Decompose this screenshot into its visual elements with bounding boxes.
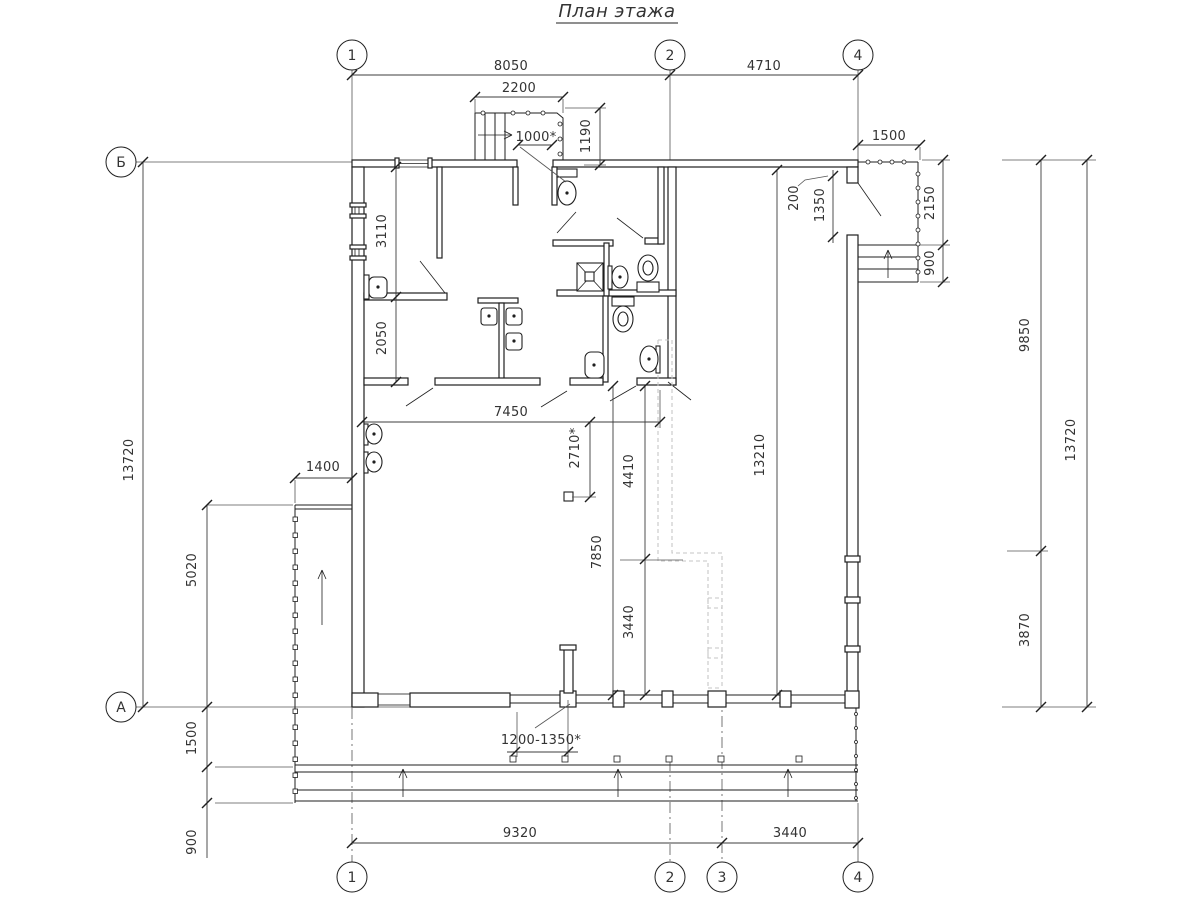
dim-label-3440-mid: 3440 (622, 605, 637, 639)
sink-symbol-2 (640, 346, 660, 373)
dim-label-2710: 2710* (568, 427, 583, 468)
dim-label-2200: 2200 (502, 81, 536, 96)
dim-label-3110: 3110 (375, 214, 390, 248)
dim-label-5020: 5020 (185, 553, 200, 587)
dim-label-13720-right: 13720 (1064, 419, 1079, 462)
toilet-symbol-2 (637, 255, 659, 292)
floor-marker-square (564, 492, 573, 501)
terrace (295, 708, 858, 801)
shower-symbol (577, 263, 603, 291)
dim-label-13210: 13210 (753, 434, 768, 477)
dim-label-1200-1350: 1200-1350* (501, 733, 582, 748)
grid-label: Б (116, 155, 126, 171)
cabinet-sink-2 (506, 308, 522, 325)
grid-label: 1 (348, 48, 357, 64)
drawing-title: План этажа (558, 1, 675, 22)
sink-symbol-3 (585, 352, 604, 378)
grid-label: 4 (854, 48, 863, 64)
toilet-symbol-4 (364, 275, 387, 299)
grid-label: 2 (666, 48, 675, 64)
counter-outline-dashed (658, 340, 722, 688)
dim-label-1190: 1190 (579, 119, 594, 153)
interior-walls (364, 167, 676, 385)
dim-label-8050: 8050 (494, 59, 528, 74)
dim-label-13720-left: 13720 (122, 439, 137, 482)
dim-label-200: 200 (787, 185, 802, 211)
dim-label-2050: 2050 (375, 321, 390, 355)
dimension-labels: 8050 4710 2200 1000* 1190 1500 200 1350 … (122, 59, 1079, 855)
movable-partition-wall (564, 649, 573, 693)
ramp-left (295, 505, 352, 803)
grid-label: А (116, 700, 126, 716)
cabinet-sink-1 (481, 308, 497, 325)
cabinet-sink-3 (506, 333, 522, 350)
dimension-lines (143, 75, 1087, 858)
dim-label-1400: 1400 (306, 460, 340, 475)
leader-200 (798, 176, 828, 186)
dim-label-4410: 4410 (622, 454, 637, 488)
toilet-symbol-1 (557, 169, 577, 205)
fixtures (364, 169, 660, 501)
grid-label: 1 (348, 870, 357, 886)
dim-label-1500-top: 1500 (872, 129, 906, 144)
generated-marks (138, 70, 1092, 848)
toilet-symbol-3 (612, 297, 634, 332)
windows (350, 158, 860, 652)
dim-label-7850: 7850 (590, 535, 605, 569)
dim-label-9850: 9850 (1018, 318, 1033, 352)
sink-symbol-4 (364, 424, 382, 445)
sink-symbol-1 (608, 266, 628, 289)
grid-label: 4 (854, 870, 863, 886)
title-block: План этажа (556, 1, 678, 23)
extension-lines (207, 99, 1096, 803)
grid-label: 2 (666, 870, 675, 886)
grid-label: 3 (718, 870, 727, 886)
dim-label-900-left: 900 (185, 829, 200, 855)
dim-label-9320: 9320 (503, 826, 537, 841)
dim-label-3440-bottom: 3440 (773, 826, 807, 841)
leader-partition (535, 704, 570, 728)
floor-plan-page: План этажа (0, 0, 1200, 900)
dim-label-1500-left: 1500 (185, 721, 200, 755)
dim-label-900-right: 900 (923, 250, 938, 276)
dim-label-2150: 2150 (923, 186, 938, 220)
dim-label-7450: 7450 (494, 405, 528, 420)
sink-symbol-5 (364, 452, 382, 473)
floor-plan-drawing: План этажа (0, 0, 1200, 900)
grid-axis-lines (136, 70, 858, 862)
dim-label-3870: 3870 (1018, 613, 1033, 647)
dim-label-1000: 1000* (515, 130, 556, 145)
dim-label-1350: 1350 (813, 188, 828, 222)
dim-label-4710: 4710 (747, 59, 781, 74)
